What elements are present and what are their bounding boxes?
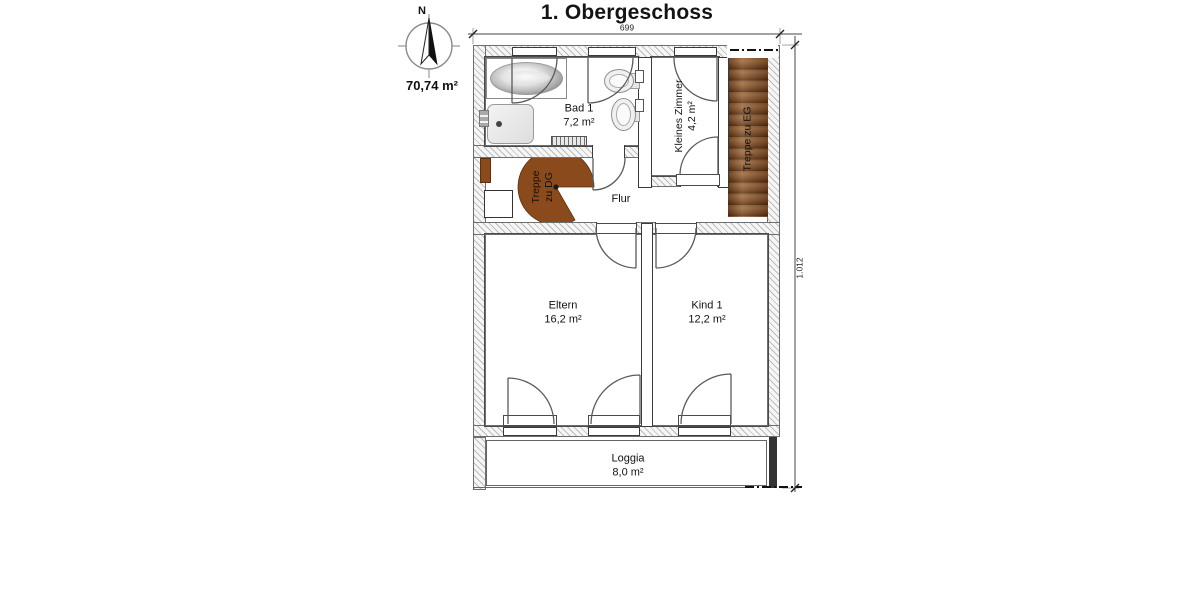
room-area: 12,2 m²: [688, 313, 725, 327]
shower-tray-icon: [487, 104, 534, 144]
door-gap-bad: [592, 145, 625, 158]
room-eltern-outline: [484, 233, 642, 427]
window-eltern-right: [588, 427, 640, 436]
window-bad-tub: [512, 47, 557, 56]
flur-niche-door: [480, 158, 491, 183]
loggia-open-edge: [473, 487, 747, 488]
window-kleineszimmer: [674, 47, 717, 56]
room-label-loggia: Loggia 8,0 m²: [611, 452, 644, 480]
window-kind: [678, 427, 731, 436]
dimension-height-label: 1.012: [795, 257, 806, 278]
window-sill-kind: [678, 415, 731, 426]
room-label-flur: Flur: [612, 193, 631, 207]
room-label-eltern: Eltern 16,2 m²: [544, 299, 581, 327]
stair-label-line2: zu DG: [543, 171, 556, 204]
wall-kleineszimmer-stair: [718, 57, 729, 188]
north-label: N: [418, 5, 426, 19]
window-eltern-left: [503, 427, 557, 436]
room-label-kind: Kind 1 12,2 m²: [688, 299, 725, 327]
total-area-label: 70,74 m²: [406, 78, 458, 94]
label-treppe-zu-dg: Treppe zu DG: [530, 171, 556, 204]
threshold-eltern: [596, 223, 637, 234]
wall-tab-2: [635, 99, 644, 112]
window-sill-eltern-right: [588, 415, 640, 426]
room-label-kleines-zimmer: Kleines Zimmer 4,2 m²: [673, 80, 699, 153]
room-area: 4,2 m²: [686, 80, 699, 153]
wall-loggia-east: [769, 437, 777, 488]
toilet-icon: [604, 69, 634, 93]
room-name: Bad 1: [563, 102, 594, 116]
window-sill-eltern-left: [503, 415, 557, 426]
wall-eltern-kind: [641, 223, 653, 427]
room-name: Loggia: [611, 452, 644, 466]
room-name: Eltern: [544, 299, 581, 313]
threshold-kleineszimmer: [676, 174, 720, 186]
threshold-kind: [655, 223, 697, 234]
stair-label-line1: Treppe: [530, 171, 543, 204]
room-area: 7,2 m²: [563, 116, 594, 130]
room-label-bad: Bad 1 7,2 m²: [563, 102, 594, 130]
floor-plan-page: 1. Obergeschoss 699 1.012 70,74 m² N Bad…: [0, 0, 1200, 600]
room-name: Kind 1: [688, 299, 725, 313]
bathtub-icon: [486, 58, 567, 99]
dimension-width-label: 699: [620, 23, 634, 34]
label-treppe-zu-eg: Treppe zu EG: [741, 107, 754, 172]
room-name: Kleines Zimmer: [673, 80, 686, 153]
window-bad-main: [588, 47, 636, 56]
wall-loggia-west: [473, 437, 486, 490]
flur-shaft-box: [484, 190, 513, 218]
wall-tab-1: [635, 70, 644, 83]
bidet-icon: [611, 98, 636, 131]
bathtub-basin: [490, 62, 563, 95]
radiator-icon: [551, 136, 587, 146]
compass-north-icon: [398, 14, 460, 78]
room-area: 8,0 m²: [611, 466, 644, 480]
faucet-icon: [479, 110, 489, 127]
opening-above-stair: [727, 45, 778, 58]
room-kind-outline: [651, 233, 769, 427]
room-area: 16,2 m²: [544, 313, 581, 327]
shower-drain-icon: [496, 121, 502, 127]
